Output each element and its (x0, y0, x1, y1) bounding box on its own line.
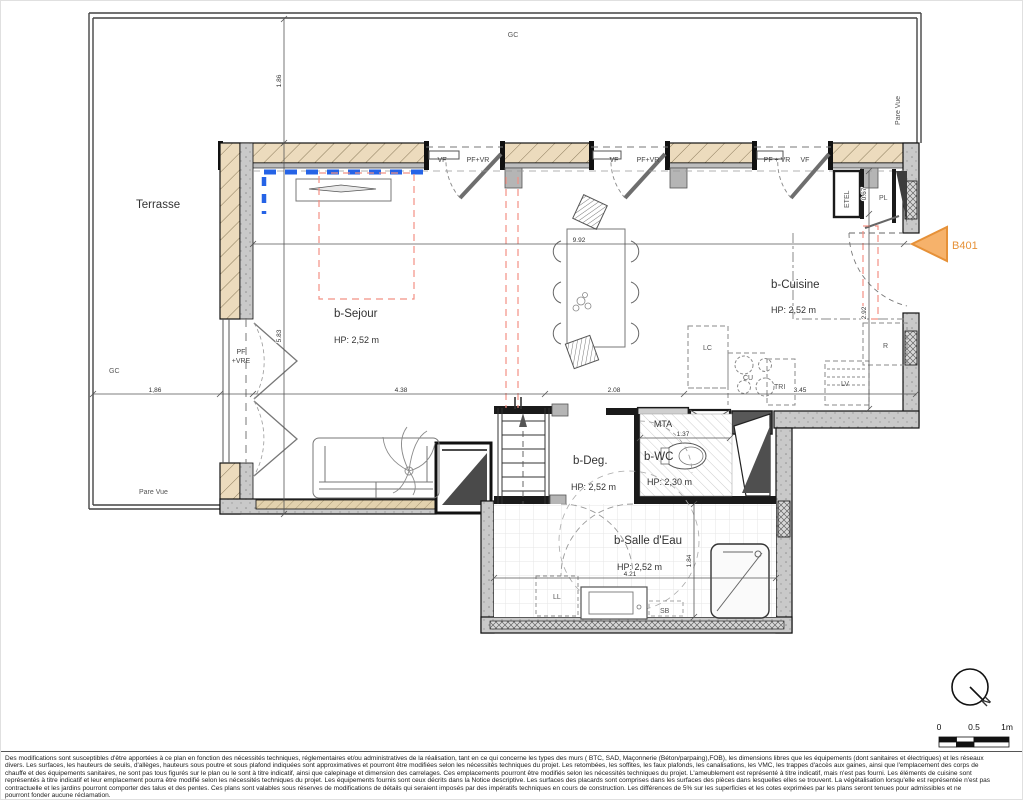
mta-label: MTA (654, 419, 672, 429)
vf-label-2: VF (610, 157, 619, 164)
cu-label: CU (743, 375, 753, 382)
b401-label: B401 (952, 240, 978, 252)
lc-label: LC (703, 345, 712, 352)
terrasse-label: Terrasse (136, 199, 180, 211)
north-compass: N (952, 669, 994, 709)
room-wc-hp: HP: 2,30 m (647, 477, 692, 487)
sb-label: SB (660, 608, 670, 615)
lc-zone (688, 326, 728, 388)
floor-plan-page: GC GC Terrasse Pare Vue Pare Vue (0, 0, 1023, 800)
dim-2-92: 2.92 (861, 306, 868, 319)
room-cuisine-label: b-Cuisine (771, 279, 820, 291)
stool-top (573, 195, 608, 230)
disclaimer-line-4: représentés à titre indicatif et leur em… (5, 777, 1020, 784)
dim-5-83: 5.83 (276, 329, 283, 342)
pfvr-label-1: PF+VR (467, 157, 490, 164)
unit-flag: B401 (912, 227, 978, 261)
scale-bar-segments (939, 737, 1009, 747)
dim-4-38: 4.38 (395, 387, 408, 394)
dim-1-86-top: 1.86 (276, 74, 283, 87)
room-deg-label: b-Deg. (573, 455, 608, 467)
dim-1-37: 1.37 (677, 431, 690, 438)
dim-1-84: 1.84 (686, 554, 693, 567)
lv-label: LV (841, 381, 849, 388)
disclaimer-line-6: pourront fonder aucune réclamation. (5, 792, 1020, 799)
r-label: R (883, 343, 888, 350)
dim-4-21: 4.21 (624, 571, 637, 578)
ceiling-drop-sejour (319, 173, 414, 299)
dim-3-45: 3.45 (794, 387, 807, 394)
room-cuisine-hp: HP: 2,52 m (771, 305, 816, 315)
room-deg-hp: HP: 2,52 m (571, 482, 616, 492)
dim-2-08: 2.08 (608, 387, 621, 394)
pare-vue-right-label: Pare Vue (895, 96, 902, 125)
floor-plan-drawing: GC GC Terrasse Pare Vue Pare Vue (1, 1, 1023, 753)
disclaimer-line-1: Des modifications sont susceptibles d'êt… (5, 755, 1020, 762)
ll-label: LL (553, 594, 561, 601)
compass-north-label: N (980, 695, 994, 709)
etel-label: ETEL (844, 190, 851, 208)
gc-left-label: GC (109, 368, 120, 375)
disclaimer-line-5: contractuelle et les jardins pourront co… (5, 785, 1020, 792)
vf-label-3: VF (801, 157, 810, 164)
pf-vre-label-line1: PF (237, 349, 246, 356)
disclaimer-line-2: divers. Les surfaces, les hauteurs de se… (5, 762, 1020, 769)
scale-bar: 0 0.5 1m (937, 722, 1013, 747)
dim-1-86-terrace: 1,86 (149, 387, 162, 394)
room-sejour-hp: HP: 2,52 m (334, 335, 379, 345)
pfvr-label-2: PF+VR (637, 157, 660, 164)
pf-vre-label-line2: +VRE (232, 358, 251, 365)
cooktop-burner (735, 356, 753, 374)
gc-top-label: GC (508, 32, 519, 39)
chairs-left (553, 241, 561, 344)
pare-vue-bottom-label: Pare Vue (139, 489, 168, 496)
pfvr-label-3: PF + VR (764, 157, 791, 164)
scale-1m: 1m (1001, 722, 1013, 732)
ceiling-drop-strip (506, 177, 518, 408)
dim-0-67: 0.67 (861, 187, 868, 200)
chairs-right (631, 241, 639, 344)
disclaimer-line-3: chauffe et des équipements sanitaires, n… (5, 770, 1020, 777)
tri-label: TRI (774, 384, 785, 391)
vf-label-1: VF (438, 157, 447, 164)
room-salle-eau-label: b-Salle d'Eau (614, 535, 682, 547)
room-sejour-label: b-Sejour (334, 308, 378, 320)
scale-05: 0.5 (968, 722, 980, 732)
scale-0: 0 (937, 722, 942, 732)
pl-label: PL (879, 195, 888, 202)
dim-9-92: 9.92 (573, 237, 586, 244)
dining-table (567, 229, 625, 347)
room-wc-label: b-WC (644, 451, 673, 463)
ceiling-drop-cuisine (863, 226, 878, 319)
stair-arrow-head (519, 413, 527, 427)
door-leaf-3 (791, 154, 829, 198)
legal-disclaimer: Des modifications sont susceptibles d'êt… (1, 751, 1023, 800)
folding-shutter-lower (254, 401, 297, 476)
